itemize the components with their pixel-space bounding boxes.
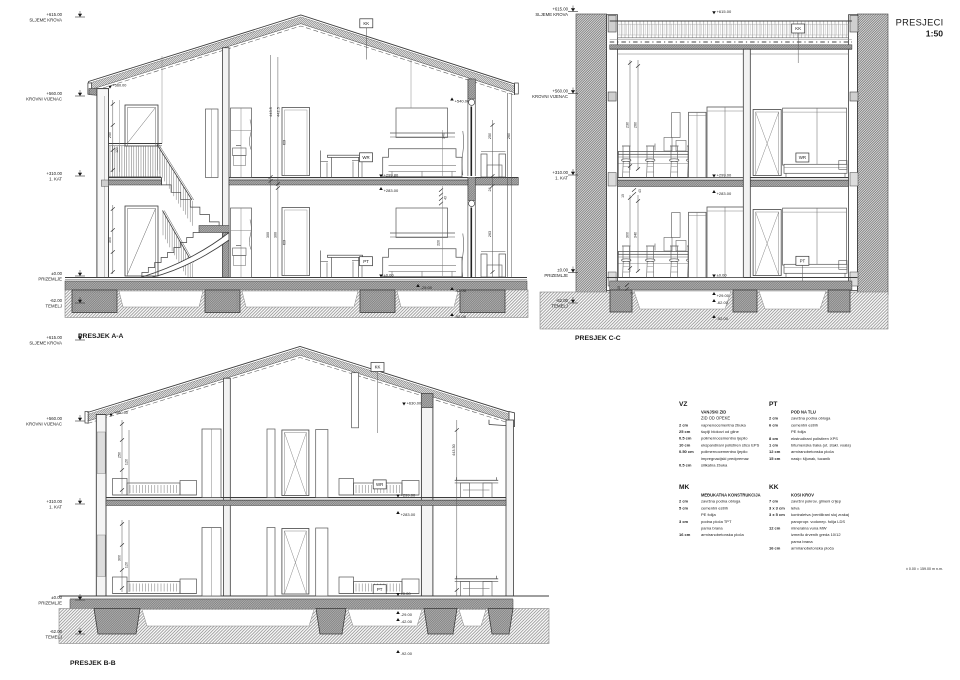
svg-text:-42.00: -42.00	[455, 288, 467, 293]
svg-text:16 cm: 16 cm	[679, 532, 691, 537]
svg-text:300: 300	[274, 232, 278, 238]
svg-text:armiranobetonska ploča: armiranobetonska ploča	[701, 532, 744, 537]
svg-text:5 cm: 5 cm	[679, 505, 689, 510]
svg-text:SLJEME KROVA: SLJEME KROVA	[535, 12, 568, 17]
svg-text:silikatna žbuka: silikatna žbuka	[701, 463, 728, 468]
svg-text:WR: WR	[362, 155, 369, 160]
svg-text:-42.00: -42.00	[401, 619, 413, 624]
svg-text:1 cm: 1 cm	[769, 443, 779, 448]
svg-text:15 cm: 15 cm	[769, 456, 781, 461]
svg-text:PRIZEMLJE: PRIZEMLJE	[38, 276, 62, 281]
svg-text:1. KAT: 1. KAT	[49, 504, 62, 509]
svg-text:260: 260	[633, 122, 637, 128]
svg-text:443.50: 443.50	[452, 444, 456, 456]
svg-text:KOSI KROV: KOSI KROV	[791, 492, 814, 497]
svg-text:8 cm: 8 cm	[769, 436, 779, 441]
svg-text:2 cm: 2 cm	[769, 416, 779, 421]
svg-text:kontraletva (ventilirani sloj: kontraletva (ventilirani sloj zraka)	[791, 512, 850, 517]
svg-text:MK: MK	[679, 484, 689, 491]
svg-text:+630.00: +630.00	[407, 400, 422, 405]
svg-text:1. KAT: 1. KAT	[555, 175, 568, 180]
svg-text:KK: KK	[795, 26, 801, 31]
svg-text:mineralna vuna MW: mineralna vuna MW	[791, 526, 827, 531]
svg-text:ekstrudirani polistiren XPS: ekstrudirani polistiren XPS	[791, 436, 838, 441]
svg-text:između drvenih greda 10/12: između drvenih greda 10/12	[791, 532, 841, 537]
svg-text:0.5 cm: 0.5 cm	[679, 436, 692, 441]
svg-text:120: 120	[124, 459, 128, 465]
svg-text:10: 10	[617, 286, 621, 290]
svg-text:KK: KK	[769, 484, 779, 491]
svg-text:300: 300	[108, 237, 112, 243]
svg-text:-92.00: -92.00	[717, 316, 729, 321]
svg-text:ZID OD OPEKE: ZID OD OPEKE	[701, 416, 730, 421]
svg-text:nasip: šljunak, tucanik: nasip: šljunak, tucanik	[791, 456, 830, 461]
svg-text:300: 300	[625, 232, 629, 238]
svg-text:250: 250	[108, 132, 112, 138]
svg-text:230: 230	[625, 122, 629, 128]
svg-text:VANJSKI ZID: VANJSKI ZID	[701, 409, 726, 414]
svg-text:6 cm: 6 cm	[769, 422, 779, 427]
svg-text:podna ploča TPT: podna ploča TPT	[701, 519, 732, 524]
svg-text:cementni estrih: cementni estrih	[701, 505, 728, 510]
svg-text:+615.00: +615.00	[717, 9, 732, 14]
svg-text:KK: KK	[363, 21, 369, 26]
svg-text:1:50: 1:50	[926, 29, 943, 39]
svg-text:+283.00: +283.00	[401, 512, 416, 517]
svg-text:letva: letva	[791, 505, 800, 510]
svg-text:±0.00: ±0.00	[401, 591, 412, 596]
svg-text:cementni estrih: cementni estrih	[791, 422, 818, 427]
svg-text:KROVNI VIJENAC: KROVNI VIJENAC	[26, 421, 62, 426]
svg-text:TEMELJ: TEMELJ	[552, 303, 568, 308]
svg-text:1. KAT: 1. KAT	[49, 176, 62, 181]
svg-text:± 0.00 = 159.00 m n.m.: ± 0.00 = 159.00 m n.m.	[906, 567, 943, 571]
svg-text:parna brana: parna brana	[701, 526, 723, 531]
svg-text:PRESJEK A-A: PRESJEK A-A	[78, 333, 124, 340]
svg-text:443.5: 443.5	[268, 107, 273, 117]
svg-text:3 x 3 cm: 3 x 3 cm	[769, 505, 785, 510]
svg-text:MEĐUKATNA KONSTRUKCIJA: MEĐUKATNA KONSTRUKCIJA	[701, 492, 761, 497]
svg-text:šuplji blokovi od gline: šuplji blokovi od gline	[701, 429, 740, 434]
svg-text:0.50 cm: 0.50 cm	[679, 449, 694, 454]
svg-text:paropropr. vodonep. folija LDS: paropropr. vodonep. folija LDS	[791, 519, 845, 524]
svg-text:442.5: 442.5	[276, 107, 281, 117]
svg-text:PT: PT	[769, 401, 777, 408]
svg-text:završna podna obloga: završna podna obloga	[701, 499, 741, 504]
svg-text:polimernocementno ljepilo: polimernocementno ljepilo	[701, 449, 748, 454]
svg-text:300: 300	[266, 232, 270, 238]
svg-text:WR: WR	[799, 155, 806, 160]
svg-text:10: 10	[621, 194, 625, 198]
svg-text:PT: PT	[363, 259, 369, 264]
svg-text:3 x 5 cm: 3 x 5 cm	[769, 512, 785, 517]
svg-text:+560.00: +560.00	[113, 84, 127, 88]
svg-text:12 cm: 12 cm	[769, 526, 781, 531]
svg-text:220: 220	[437, 240, 441, 246]
svg-text:+283.00: +283.00	[717, 191, 732, 196]
svg-text:PRESJEK B-B: PRESJEK B-B	[70, 660, 116, 667]
svg-text:vapnenocementna žbuka: vapnenocementna žbuka	[701, 422, 746, 427]
svg-text:3 cm: 3 cm	[679, 519, 689, 524]
svg-text:+560.00: +560.00	[114, 411, 128, 415]
svg-text:PT: PT	[800, 259, 806, 264]
svg-text:-29.00: -29.00	[421, 285, 433, 290]
svg-text:SLJEME KROVA: SLJEME KROVA	[29, 340, 62, 345]
svg-text:340: 340	[633, 232, 637, 238]
svg-text:25 cm: 25 cm	[679, 429, 691, 434]
svg-text:+540.00: +540.00	[455, 98, 470, 103]
svg-text:TEMELJ: TEMELJ	[46, 634, 62, 639]
svg-text:KROVNI VIJENAC: KROVNI VIJENAC	[532, 94, 568, 99]
svg-text:250: 250	[117, 452, 121, 458]
svg-text:7 cm: 7 cm	[769, 499, 779, 504]
svg-text:120: 120	[124, 562, 128, 568]
svg-text:bitumenska traka (ut. stakl. v: bitumenska traka (ut. stakl. voala)	[791, 443, 851, 448]
svg-text:16 cm: 16 cm	[769, 546, 781, 551]
svg-text:PRIZEMLJE: PRIZEMLJE	[544, 273, 568, 278]
svg-text:263: 263	[488, 231, 492, 237]
svg-text:SLJEME KROVA: SLJEME KROVA	[29, 17, 62, 22]
svg-text:armiranobetonska ploča: armiranobetonska ploča	[791, 449, 834, 454]
svg-text:±0.00: ±0.00	[384, 272, 395, 277]
svg-text:300: 300	[117, 555, 121, 561]
svg-text:POD NA TLU: POD NA TLU	[791, 409, 816, 414]
svg-text:završna podna obloga: završna podna obloga	[791, 416, 831, 421]
svg-text:43: 43	[638, 189, 642, 193]
svg-text:+299.00: +299.00	[401, 492, 416, 497]
svg-text:260: 260	[507, 133, 511, 139]
svg-text:KROVNI VIJENAC: KROVNI VIJENAC	[26, 96, 62, 101]
svg-text:-92.00: -92.00	[455, 314, 467, 319]
svg-text:24: 24	[488, 187, 492, 191]
svg-text:PRESJECI: PRESJECI	[896, 18, 944, 28]
svg-text:120: 120	[115, 147, 119, 153]
svg-text:-92.00: -92.00	[401, 651, 413, 656]
svg-text:polimernocementno ljepilo: polimernocementno ljepilo	[701, 436, 748, 441]
svg-text:završni pokrov, glineni crijep: završni pokrov, glineni crijep	[791, 499, 842, 504]
svg-text:PE folija: PE folija	[701, 512, 716, 517]
svg-text:10 cm: 10 cm	[679, 442, 691, 447]
svg-text:+29.00: +29.00	[717, 293, 730, 298]
svg-text:0.5 cm: 0.5 cm	[679, 463, 692, 468]
svg-text:impregnacijski predpremaz: impregnacijski predpremaz	[701, 456, 749, 461]
svg-text:±0.00: ±0.00	[717, 272, 728, 277]
svg-text:7: 7	[630, 292, 634, 294]
svg-text:PRIZEMLJE: PRIZEMLJE	[38, 600, 62, 605]
svg-text:PE folija: PE folija	[791, 429, 806, 434]
svg-text:TEMELJ: TEMELJ	[46, 303, 62, 308]
svg-text:240: 240	[442, 133, 446, 139]
svg-text:43: 43	[444, 196, 448, 200]
svg-text:armiranobetonska ploča: armiranobetonska ploča	[791, 546, 834, 551]
svg-text:+283.00: +283.00	[384, 188, 399, 193]
svg-text:2 cm: 2 cm	[679, 499, 689, 504]
svg-text:+299.80: +299.80	[384, 172, 399, 177]
svg-text:ekspandirani polistiren stico: ekspandirani polistiren stico EPS	[701, 442, 760, 447]
svg-text:KK: KK	[375, 365, 381, 370]
svg-text:250: 250	[488, 133, 492, 139]
svg-text:-29.00: -29.00	[401, 612, 413, 617]
svg-text:12 cm: 12 cm	[769, 449, 781, 454]
svg-text:-62.00: -62.00	[717, 300, 729, 305]
svg-text:WR: WR	[376, 482, 383, 487]
svg-text:PT: PT	[377, 587, 383, 592]
svg-text:+299.00: +299.00	[717, 172, 732, 177]
svg-text:parna brana: parna brana	[791, 539, 813, 544]
svg-text:2 cm: 2 cm	[679, 422, 689, 427]
svg-text:VZ: VZ	[679, 401, 687, 408]
svg-text:PRESJEK C-C: PRESJEK C-C	[575, 335, 621, 342]
